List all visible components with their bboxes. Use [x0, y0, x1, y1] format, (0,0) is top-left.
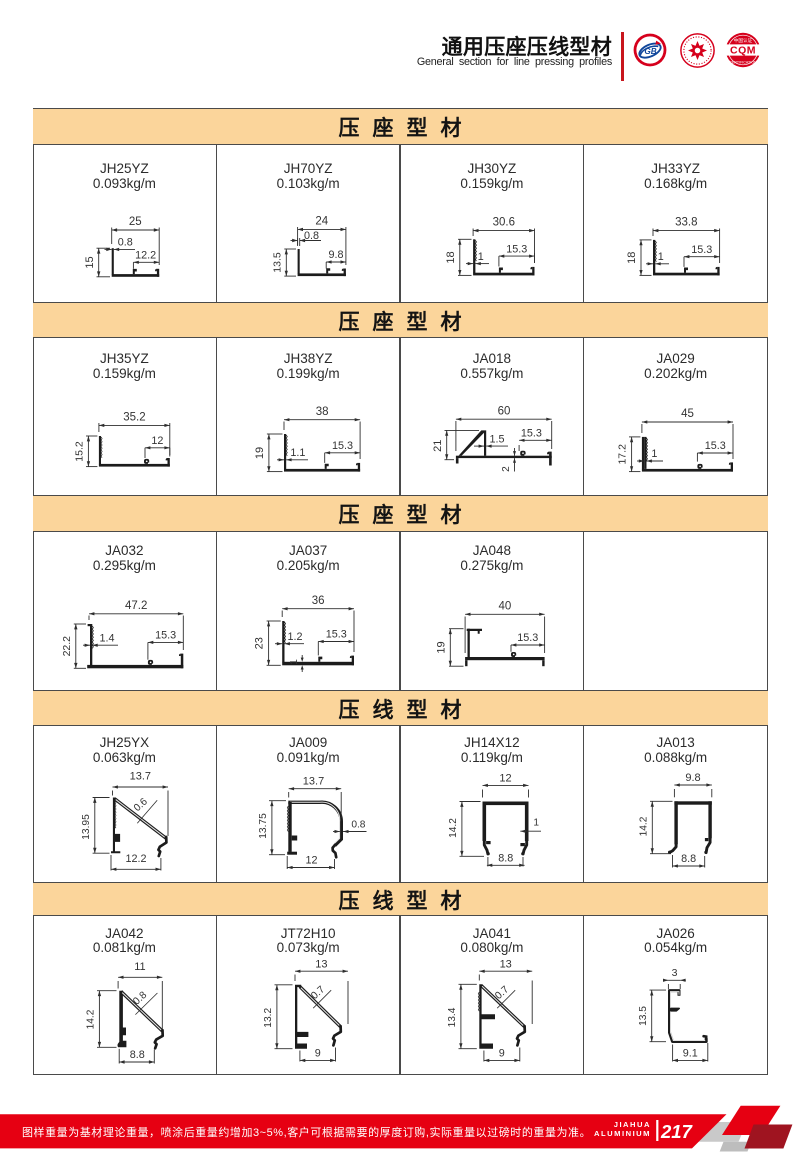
svg-text:1: 1 — [478, 251, 484, 263]
svg-text:35.2: 35.2 — [123, 412, 145, 424]
svg-text:9.1: 9.1 — [683, 1048, 698, 1060]
svg-text:24: 24 — [315, 215, 328, 227]
svg-text:1.1: 1.1 — [290, 447, 305, 459]
svg-text:15.3: 15.3 — [326, 629, 347, 641]
svg-text:25: 25 — [129, 216, 142, 228]
svg-text:19: 19 — [435, 641, 447, 653]
svg-text:8.8: 8.8 — [681, 853, 696, 865]
svg-text:22.2: 22.2 — [61, 636, 73, 657]
svg-text:15: 15 — [84, 256, 96, 268]
svg-text:13.7: 13.7 — [130, 771, 151, 783]
svg-text:15.3: 15.3 — [691, 244, 712, 256]
svg-text:12.2: 12.2 — [125, 853, 146, 865]
svg-text:9: 9 — [499, 1048, 505, 1060]
svg-text:15.3: 15.3 — [705, 440, 726, 452]
svg-text:13: 13 — [315, 958, 327, 970]
svg-text:17.2: 17.2 — [617, 444, 629, 465]
svg-text:23: 23 — [254, 637, 266, 649]
svg-text:9.8: 9.8 — [685, 772, 700, 784]
svg-text:13.7: 13.7 — [303, 776, 324, 788]
svg-text:0.8: 0.8 — [304, 230, 319, 242]
svg-text:13.95: 13.95 — [81, 814, 92, 840]
svg-text:13.2: 13.2 — [263, 1008, 274, 1028]
svg-text:60: 60 — [498, 405, 511, 417]
svg-text:13: 13 — [500, 958, 512, 970]
svg-text:15.3: 15.3 — [521, 428, 542, 440]
svg-text:13.4: 13.4 — [447, 1007, 458, 1027]
svg-text:1.5: 1.5 — [489, 433, 504, 445]
svg-text:0.8: 0.8 — [351, 820, 365, 831]
svg-text:36: 36 — [312, 595, 325, 607]
svg-text:3: 3 — [672, 967, 678, 979]
svg-text:18: 18 — [445, 251, 457, 263]
svg-text:13.5: 13.5 — [271, 252, 283, 273]
svg-text:14.2: 14.2 — [86, 1009, 97, 1029]
svg-text:15.3: 15.3 — [506, 243, 527, 255]
svg-text:14.2: 14.2 — [638, 816, 649, 836]
svg-text:14.2: 14.2 — [448, 818, 459, 838]
svg-text:21: 21 — [432, 440, 444, 452]
svg-text:15.3: 15.3 — [155, 630, 176, 642]
svg-text:45: 45 — [681, 408, 694, 420]
svg-text:1: 1 — [651, 448, 657, 460]
svg-text:13.75: 13.75 — [258, 813, 269, 839]
svg-text:8.8: 8.8 — [498, 852, 513, 864]
svg-text:9.8: 9.8 — [328, 249, 343, 261]
svg-text:18: 18 — [626, 252, 638, 264]
svg-text:15.3: 15.3 — [332, 440, 353, 452]
svg-text:12: 12 — [305, 855, 317, 867]
svg-text:33.8: 33.8 — [675, 217, 697, 229]
svg-text:38: 38 — [316, 406, 329, 418]
svg-text:9: 9 — [315, 1048, 321, 1060]
svg-text:40: 40 — [499, 601, 512, 613]
svg-text:47.2: 47.2 — [125, 600, 147, 612]
svg-text:1.2: 1.2 — [287, 631, 302, 643]
svg-text:12: 12 — [151, 435, 163, 447]
svg-text:15.3: 15.3 — [517, 632, 538, 644]
svg-text:1: 1 — [289, 659, 300, 665]
svg-text:1: 1 — [658, 251, 664, 263]
svg-text:1: 1 — [533, 817, 539, 828]
svg-text:8.8: 8.8 — [130, 1049, 145, 1061]
svg-text:30.6: 30.6 — [493, 217, 515, 229]
svg-text:15.2: 15.2 — [74, 441, 86, 462]
svg-text:0.8: 0.8 — [118, 237, 133, 249]
svg-text:12: 12 — [499, 772, 511, 784]
svg-text:11: 11 — [134, 961, 145, 973]
svg-text:12.2: 12.2 — [135, 250, 156, 262]
svg-text:1.4: 1.4 — [99, 632, 114, 644]
svg-text:19: 19 — [254, 447, 266, 459]
svg-text:13.5: 13.5 — [638, 1006, 649, 1026]
svg-text:2: 2 — [501, 466, 512, 472]
